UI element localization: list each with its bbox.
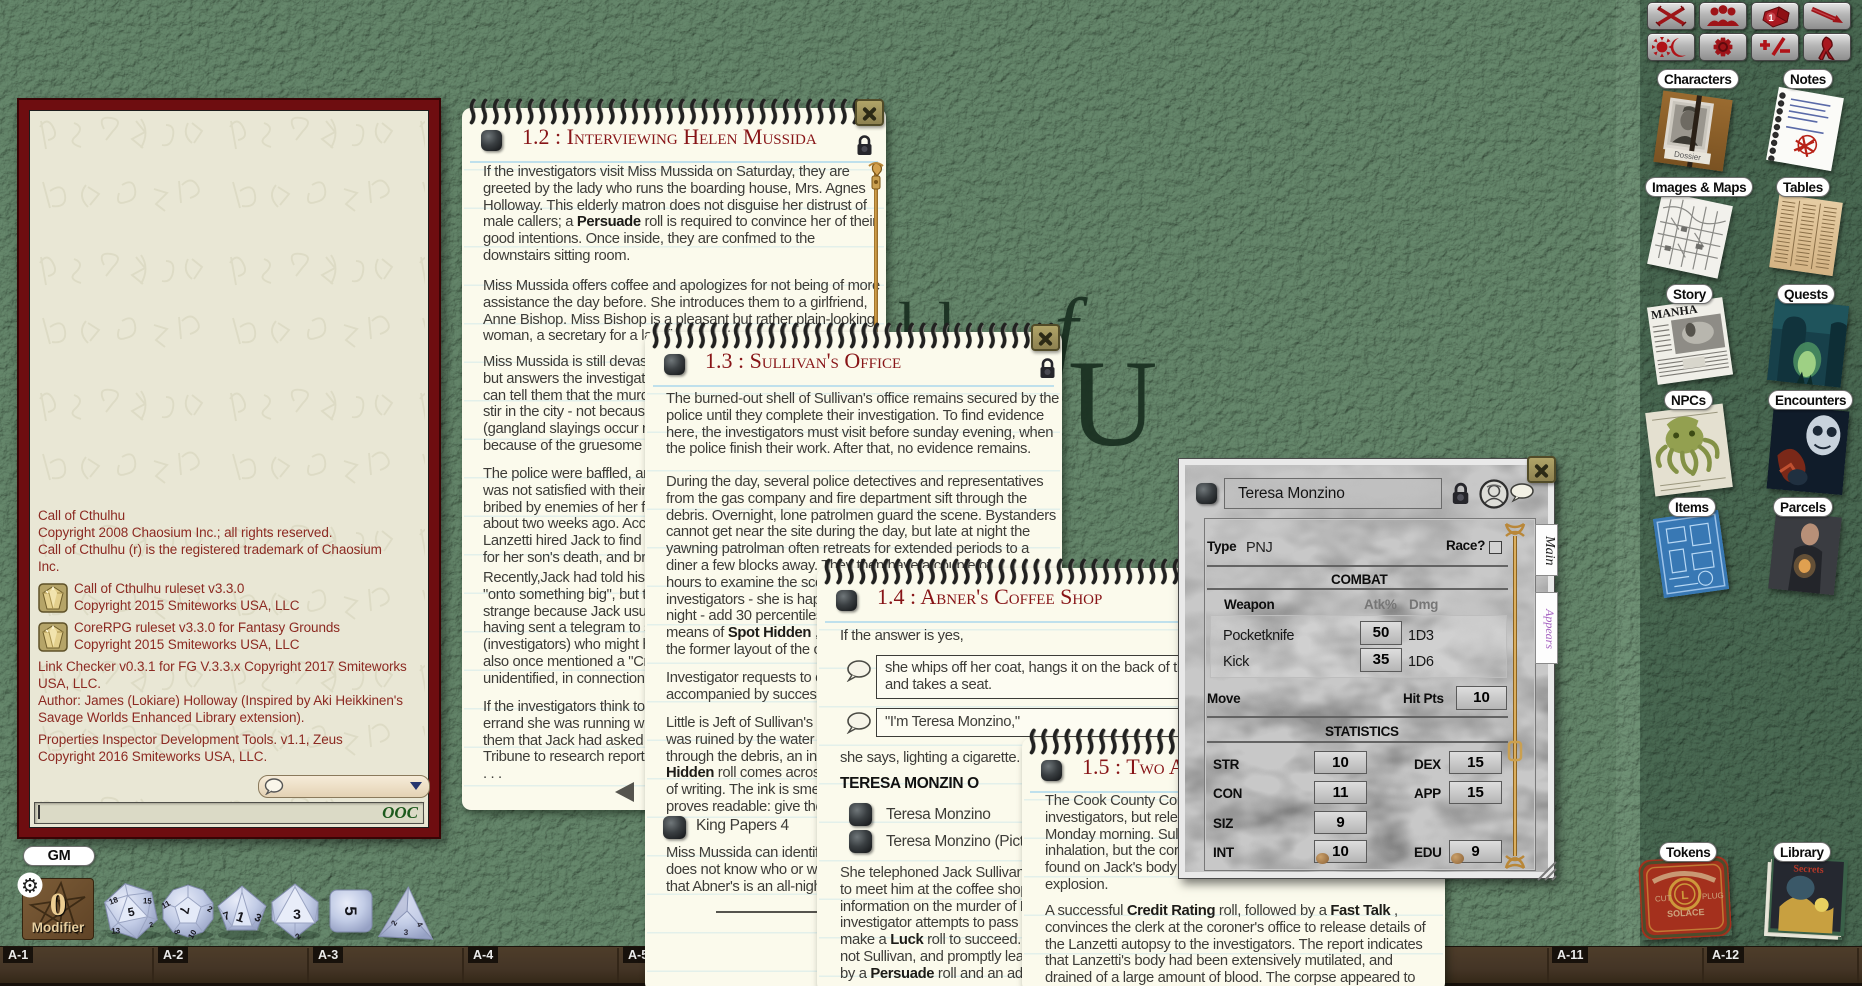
svg-text:15: 15	[143, 896, 153, 905]
svg-text:1: 1	[1768, 13, 1774, 24]
svg-text:5: 5	[341, 906, 360, 915]
svg-text:Secrets: Secrets	[1793, 863, 1824, 876]
svg-text:3: 3	[293, 906, 301, 922]
svg-text:13: 13	[111, 926, 121, 935]
